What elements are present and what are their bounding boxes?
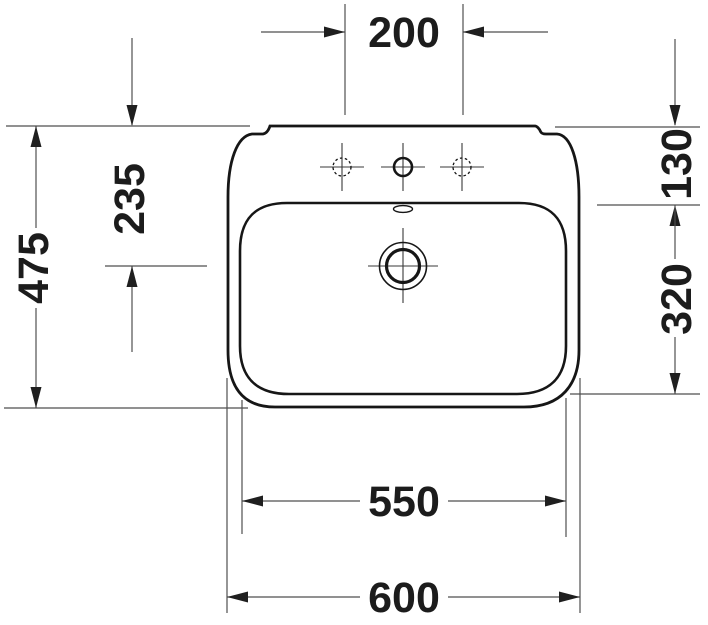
tap-holes <box>320 143 484 191</box>
dim-130-arrow-down-icon <box>670 105 681 126</box>
dimension-130: 130 <box>555 39 701 205</box>
dimension-200: 200 <box>261 4 548 115</box>
dim-475-label: 475 <box>10 232 58 304</box>
washbasin-dimension-drawing: 200 475 235 130 320 <box>0 0 708 625</box>
tap-hole-left <box>320 143 364 191</box>
dim-200-arrow-left-icon <box>463 27 484 38</box>
dim-475-arrow-down-icon <box>31 387 42 408</box>
dim-475-arrow-up-icon <box>31 126 42 147</box>
drain-hole <box>368 228 438 303</box>
dim-235-arrow-up-icon <box>127 266 138 287</box>
dim-550-arrow-left-icon <box>242 496 263 507</box>
dim-320-arrow-down-icon <box>670 373 681 394</box>
dim-550-arrow-right-icon <box>545 496 566 507</box>
tap-hole-right <box>440 143 484 191</box>
dim-200-arrow-right-icon <box>324 27 345 38</box>
technical-drawing-canvas: 200 475 235 130 320 <box>0 0 708 625</box>
dim-550-label: 550 <box>368 478 440 526</box>
tap-hole-center <box>381 143 425 191</box>
dim-600-arrow-left-icon <box>227 592 248 603</box>
dimension-235: 235 <box>105 38 207 352</box>
dim-235-label: 235 <box>106 163 154 235</box>
dim-130-label: 130 <box>653 128 701 200</box>
dim-600-arrow-right-icon <box>559 592 580 603</box>
dimension-320: 320 <box>570 205 701 394</box>
dim-320-label: 320 <box>653 263 701 335</box>
dim-235-arrow-down-icon <box>127 105 138 126</box>
dim-200-label: 200 <box>368 9 440 57</box>
overflow-slot <box>394 206 413 213</box>
dimension-550: 550 <box>242 398 566 537</box>
dim-600-label: 600 <box>368 574 440 622</box>
